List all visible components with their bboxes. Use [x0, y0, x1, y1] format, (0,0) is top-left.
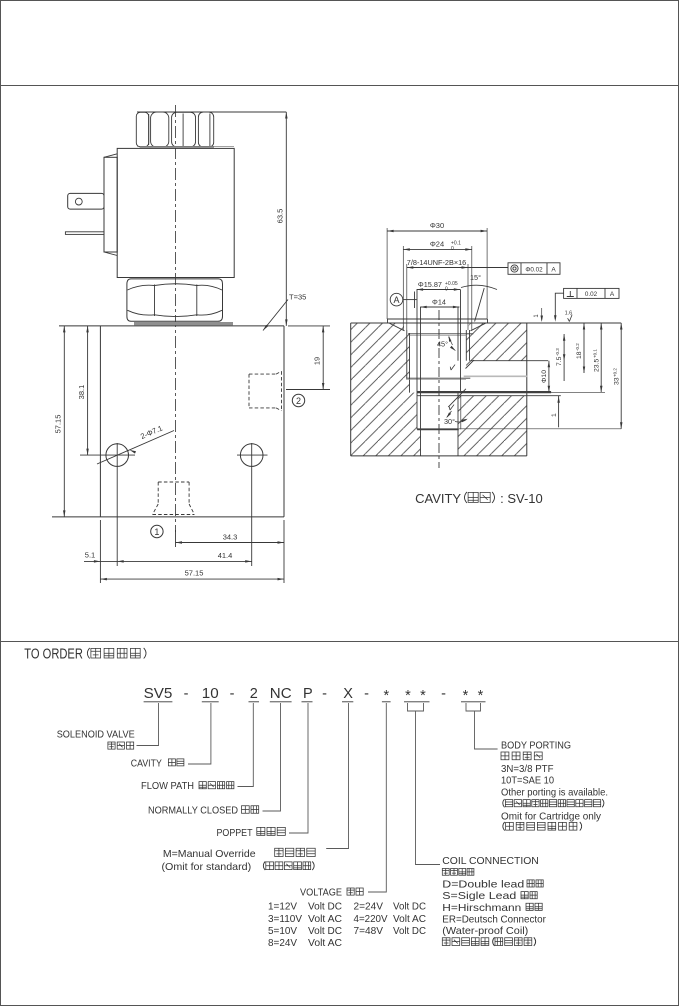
svg-text:Φ30: Φ30 — [430, 221, 444, 230]
svg-text:CAVITY: CAVITY — [415, 491, 461, 506]
svg-text:A: A — [610, 291, 615, 298]
svg-text:10T=SAE 10: 10T=SAE 10 — [501, 775, 554, 786]
svg-text:-: - — [322, 686, 327, 702]
svg-text:-: - — [441, 686, 446, 702]
svg-text:41.4: 41.4 — [218, 551, 233, 560]
svg-text:7/8-14UNF-2B×16: 7/8-14UNF-2B×16 — [407, 258, 466, 267]
svg-text:Volt AC: Volt AC — [393, 914, 426, 925]
svg-text:M=Manual Override: M=Manual Override — [163, 849, 256, 860]
svg-text:NORMALLY CLOSED: NORMALLY CLOSED — [148, 806, 238, 817]
svg-text:4=220V: 4=220V — [354, 914, 388, 925]
svg-text:7.5: 7.5 — [556, 356, 563, 366]
svg-text:18: 18 — [576, 351, 583, 359]
svg-text:15°: 15° — [470, 273, 481, 282]
svg-text:+0.1: +0.1 — [593, 349, 598, 358]
svg-text:CAVITY: CAVITY — [131, 758, 162, 769]
svg-text:1.6: 1.6 — [565, 310, 573, 316]
svg-text:2: 2 — [250, 686, 258, 702]
svg-text:Volt DC: Volt DC — [308, 902, 342, 913]
svg-text:A: A — [551, 266, 556, 273]
svg-text:19: 19 — [313, 357, 322, 365]
svg-text:38.1: 38.1 — [77, 385, 86, 400]
svg-text:0.02: 0.02 — [585, 291, 598, 298]
svg-text:Volt DC: Volt DC — [308, 926, 342, 937]
svg-text:S=Sigle Lead: S=Sigle Lead — [442, 891, 516, 902]
svg-text:Volt AC: Volt AC — [308, 938, 342, 949]
svg-text:-0.2: -0.2 — [575, 343, 580, 351]
svg-text:0: 0 — [451, 246, 454, 252]
svg-text:-: - — [364, 686, 369, 702]
svg-text:VOLTAGE: VOLTAGE — [300, 888, 342, 899]
svg-text:1: 1 — [551, 413, 558, 417]
svg-text:63.5: 63.5 — [276, 209, 285, 224]
svg-text:-: - — [184, 686, 189, 702]
svg-text:Φ24: Φ24 — [430, 239, 444, 248]
svg-text:2: 2 — [296, 396, 301, 406]
svg-text:Other porting is available.: Other porting is available. — [501, 787, 608, 798]
svg-text:Φ0.02: Φ0.02 — [525, 266, 543, 273]
svg-text:-: - — [230, 686, 235, 702]
svg-text:COIL CONNECTION: COIL CONNECTION — [442, 856, 539, 867]
svg-text:P: P — [303, 686, 313, 702]
svg-text:8=24V: 8=24V — [268, 938, 297, 949]
svg-text:A: A — [393, 295, 399, 305]
svg-text:5=10V: 5=10V — [268, 926, 297, 937]
svg-text:+0.2: +0.2 — [613, 368, 618, 377]
svg-text:10: 10 — [202, 686, 219, 702]
svg-text:1: 1 — [534, 314, 540, 318]
svg-text:57.15: 57.15 — [185, 569, 204, 578]
svg-text:30°: 30° — [444, 417, 455, 426]
svg-text:7=48V: 7=48V — [354, 926, 384, 937]
svg-text:5.1: 5.1 — [85, 551, 95, 560]
svg-text:Volt AC: Volt AC — [308, 914, 342, 925]
svg-text:(Omit for standard): (Omit for standard) — [162, 862, 252, 873]
svg-text:: SV-10: : SV-10 — [500, 491, 543, 506]
svg-text:D=Double lead: D=Double lead — [442, 879, 524, 890]
svg-text:H=Hirschmann: H=Hirschmann — [442, 903, 521, 914]
svg-text:-0.3: -0.3 — [555, 348, 560, 356]
svg-text:1: 1 — [154, 527, 159, 537]
svg-text:(Water-proof Coil): (Water-proof Coil) — [442, 926, 528, 937]
svg-text:3=110V: 3=110V — [268, 914, 302, 925]
svg-text:1=12V: 1=12V — [268, 902, 297, 913]
svg-text:T=35: T=35 — [289, 293, 306, 302]
svg-text:FLOW PATH: FLOW PATH — [141, 781, 194, 792]
svg-text:0: 0 — [445, 287, 448, 293]
svg-text:Φ15.87: Φ15.87 — [418, 280, 442, 289]
svg-text:Φ10: Φ10 — [541, 370, 548, 383]
svg-text:BODY PORTING: BODY PORTING — [501, 741, 571, 752]
svg-text:33: 33 — [614, 377, 621, 385]
svg-text:Omit for Cartridge only: Omit for Cartridge only — [501, 811, 602, 822]
svg-text:Volt DC: Volt DC — [393, 902, 426, 913]
svg-text:NC: NC — [270, 686, 292, 702]
svg-text:ER=Deutsch Connector: ER=Deutsch Connector — [442, 915, 546, 926]
svg-text:POPPET: POPPET — [217, 828, 253, 839]
svg-text:Φ14: Φ14 — [432, 298, 446, 307]
svg-text:SV5: SV5 — [144, 686, 173, 702]
svg-text:Volt DC: Volt DC — [393, 926, 426, 937]
svg-text:SOLENOID VALVE: SOLENOID VALVE — [57, 730, 135, 741]
svg-text:23.5: 23.5 — [594, 359, 601, 372]
svg-text:X: X — [343, 686, 353, 702]
svg-text:2-Φ7.1: 2-Φ7.1 — [139, 423, 164, 440]
svg-text:45°: 45° — [437, 340, 448, 349]
svg-text:34.3: 34.3 — [223, 533, 238, 542]
svg-text:TO ORDER: TO ORDER — [24, 647, 83, 663]
svg-text:3N=3/8 PTF: 3N=3/8 PTF — [501, 764, 554, 775]
svg-text:2=24V: 2=24V — [354, 902, 384, 913]
svg-text:57.15: 57.15 — [54, 415, 63, 434]
